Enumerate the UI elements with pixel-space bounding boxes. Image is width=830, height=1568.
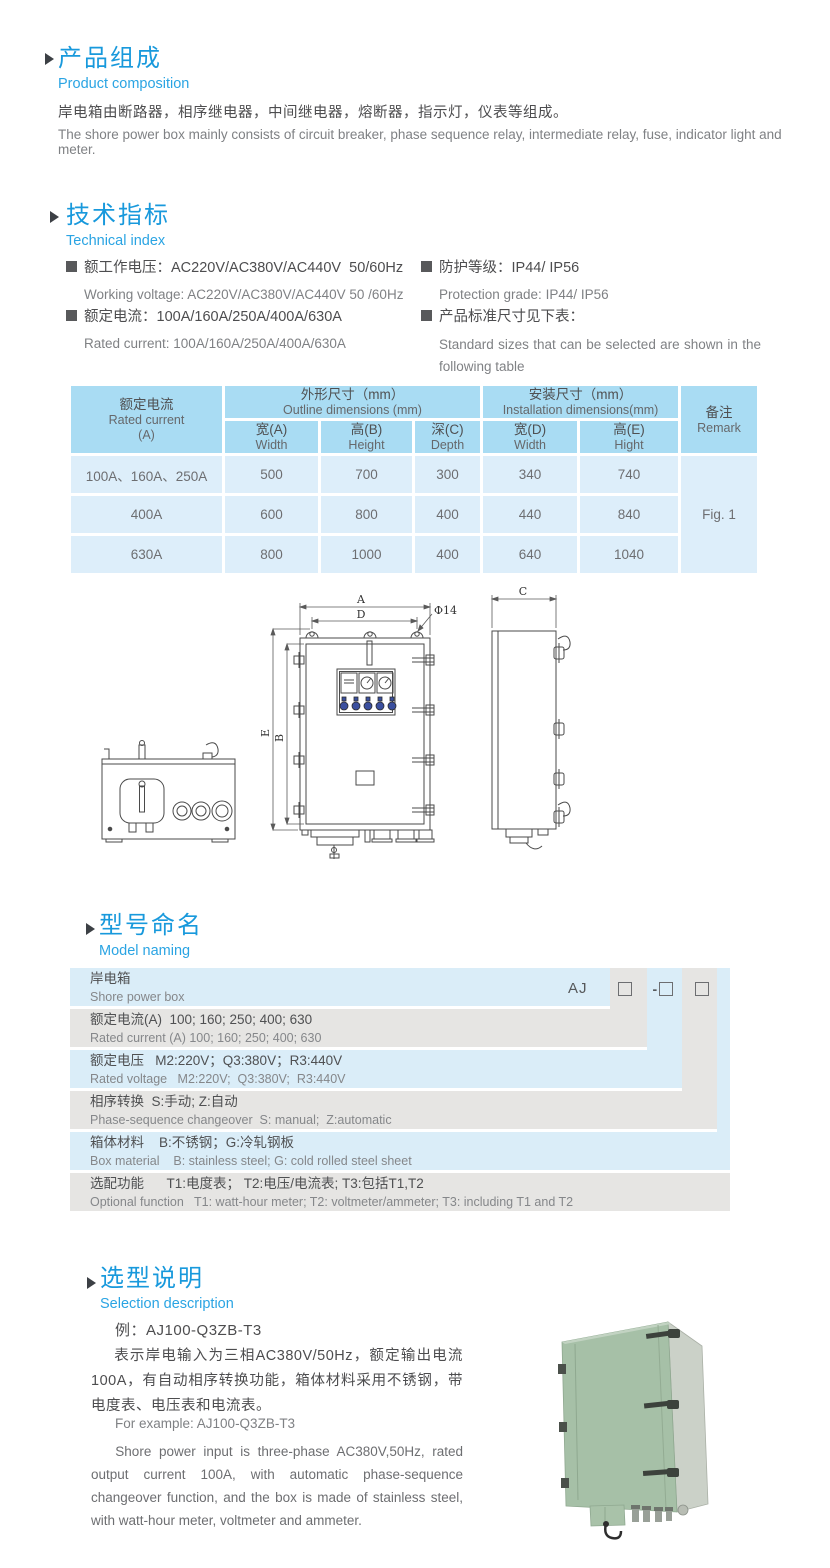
spec-en-label: Working voltage: AC220V/AC380V/AC440V 50… — [84, 285, 411, 305]
cell-height-b: 700 — [320, 455, 414, 495]
cell-width-a: 500 — [224, 455, 320, 495]
section-selection-header: 选型说明 Selection description — [100, 1266, 234, 1312]
square-bullet-icon — [421, 310, 432, 321]
cell-rated-current: 400A — [70, 495, 224, 535]
section-title-zh: 型号命名 — [99, 913, 203, 939]
cell-height-b: 1000 — [320, 535, 414, 575]
table-row: 100A、160A、250A 500 700 300 340 740 Fig. … — [70, 455, 759, 495]
square-bullet-icon — [421, 261, 432, 272]
cell-height-e: 740 — [579, 455, 680, 495]
col-header-rated-current: 额定电流 Rated current (A) — [70, 385, 224, 455]
col-header-height-b: 高(B)Height — [320, 420, 414, 455]
dim-label-c: C — [519, 585, 527, 598]
selection-paragraph-en: Shore power input is three-phase AC380V,… — [91, 1440, 463, 1532]
spec-zh-label: 额定电流：100A/160A/250A/400A/630A — [84, 305, 342, 326]
bottom-view-drawing — [102, 741, 235, 843]
col-group-outline-dimensions: 外形尺寸（mm） Outline dimensions (mm) — [224, 385, 482, 420]
model-code-strip: AJ - — [568, 968, 709, 1009]
cell-width-d: 340 — [482, 455, 579, 495]
composition-text-en: The shore power box mainly consists of c… — [58, 127, 798, 157]
cell-depth-c: 300 — [414, 455, 482, 495]
door-latches — [294, 652, 304, 818]
hinge-bars — [412, 655, 434, 815]
size-table-wrap: 额定电流 Rated current (A) 外形尺寸（mm） Outline … — [68, 383, 760, 576]
section-title-en: Product composition — [58, 76, 189, 92]
cell-width-d: 440 — [482, 495, 579, 535]
size-table: 额定电流 Rated current (A) 外形尺寸（mm） Outline … — [68, 383, 760, 576]
meter-panel — [337, 669, 396, 715]
cell-remark: Fig. 1 — [680, 455, 759, 575]
col-group-installation-dimensions: 安装尺寸（mm） Installation dimensions(mm) — [482, 385, 680, 420]
naming-row-optional-function: 选配功能 T1:电度表； T2:电压/电流表; T3:包括T1,T2 Optio… — [70, 1173, 573, 1211]
spec-zh-label: 额工作电压：AC220V/AC380V/AC440V 50/60Hz — [84, 256, 403, 277]
cell-rated-current: 630A — [70, 535, 224, 575]
spec-rated-current: 额定电流：100A/160A/250A/400A/630A Rated curr… — [66, 305, 411, 364]
dim-label-a: A — [356, 593, 366, 606]
section-title-zh: 技术指标 — [66, 203, 170, 229]
model-naming-diagram: AJ - 岸电箱 Shore power box 额定电流(A) 100; 16… — [70, 968, 730, 1211]
selection-example-zh: 例：AJ100-Q3ZB-T3 — [115, 1319, 262, 1340]
cable-glands — [631, 1505, 688, 1522]
front-view-drawing — [294, 632, 434, 859]
section-composition-header: 产品组成 Product composition — [58, 46, 189, 92]
spec-en-label: Protection grade: IP44/ IP56 — [439, 285, 766, 305]
table-row: 630A 800 1000 400 640 1040 — [70, 535, 759, 575]
col-header-height-e: 高(E)Hight — [579, 420, 680, 455]
naming-row-rated-current: 额定电流(A) 100; 160; 250; 400; 630 Rated cu… — [70, 1009, 321, 1047]
catalog-page: { "colors": { "accent": "#1899dc", "tabl… — [0, 0, 830, 1568]
naming-row-box-material: 箱体材料 B:不锈钢；G:冷轧钢板 Box material B: stainl… — [70, 1132, 412, 1170]
cell-width-d: 640 — [482, 535, 579, 575]
dim-label-d: D — [357, 608, 366, 621]
cell-height-e: 840 — [579, 495, 680, 535]
square-bullet-icon — [66, 261, 77, 272]
spec-en-label: Standard sizes that can be selected are … — [439, 334, 761, 378]
section-arrow-icon — [86, 923, 95, 935]
section-title-zh: 产品组成 — [58, 46, 189, 72]
model-code-separator: - — [653, 981, 658, 997]
col-header-depth-c: 深(C)Depth — [414, 420, 482, 455]
spec-en-label: Rated current: 100A/160A/250A/400A/630A — [84, 334, 411, 354]
cell-width-a: 600 — [224, 495, 320, 535]
naming-row-phase-sequence: 相序转换 S:手动; Z:自动 Phase-sequence changeove… — [70, 1091, 392, 1129]
composition-text-zh: 岸电箱由断路器，相序继电器，中间继电器，熔断器，指示灯，仪表等组成。 — [58, 101, 778, 122]
bottom-fittings — [302, 830, 434, 859]
mounting-lugs — [306, 632, 423, 665]
section-title-en: Technical index — [66, 233, 170, 249]
cabinet-illustration — [558, 1322, 708, 1538]
dim-label-e: E — [259, 729, 272, 737]
cell-width-a: 800 — [224, 535, 320, 575]
product-photo — [550, 1312, 725, 1552]
dimension-drawing: A D Φ14 E B C — [60, 583, 800, 883]
cell-height-e: 1040 — [579, 535, 680, 575]
indicator-lights — [340, 697, 396, 710]
dim-label-b: B — [273, 734, 286, 742]
cell-depth-c: 400 — [414, 535, 482, 575]
dim-label-hole: Φ14 — [434, 604, 457, 617]
col-header-width-d: 宽(D)Width — [482, 420, 579, 455]
section-title-en: Selection description — [100, 1296, 234, 1312]
cell-rated-current: 100A、160A、250A — [70, 455, 224, 495]
naming-row-shore-power-box: 岸电箱 Shore power box — [70, 968, 185, 1006]
square-bullet-icon — [66, 310, 77, 321]
section-arrow-icon — [87, 1277, 96, 1289]
spec-standard-sizes: 产品标准尺寸见下表： Standard sizes that can be se… — [421, 305, 766, 388]
side-view-drawing — [492, 631, 570, 849]
section-arrow-icon — [45, 53, 54, 65]
section-title-en: Model naming — [99, 943, 203, 959]
side-bottom-fittings — [506, 829, 548, 849]
section-model-naming-header: 型号命名 Model naming — [99, 913, 203, 959]
section-technical-header: 技术指标 Technical index — [66, 203, 170, 249]
cell-depth-c: 400 — [414, 495, 482, 535]
section-arrow-icon — [50, 211, 59, 223]
section-title-zh: 选型说明 — [100, 1266, 234, 1292]
model-code-box — [659, 982, 673, 996]
model-code-prefix: AJ — [568, 980, 588, 997]
naming-row-rated-voltage: 额定电压 M2:220V；Q3:380V；R3:440V Rated volta… — [70, 1050, 345, 1088]
cell-height-b: 800 — [320, 495, 414, 535]
spec-zh-label: 产品标准尺寸见下表： — [439, 305, 584, 326]
selection-paragraph-zh: 表示岸电输入为三相AC380V/50Hz，额定输出电流100A，有自动相序转换功… — [91, 1344, 463, 1419]
table-row: 400A 600 800 400 440 840 — [70, 495, 759, 535]
spec-zh-label: 防护等级：IP44/ IP56 — [439, 256, 579, 277]
col-header-width-a: 宽(A)Width — [224, 420, 320, 455]
selection-example-en: For example: AJ100-Q3ZB-T3 — [115, 1416, 295, 1431]
col-header-remark: 备注 Remark — [680, 385, 759, 455]
model-code-box — [695, 982, 709, 996]
model-code-box — [618, 982, 632, 996]
